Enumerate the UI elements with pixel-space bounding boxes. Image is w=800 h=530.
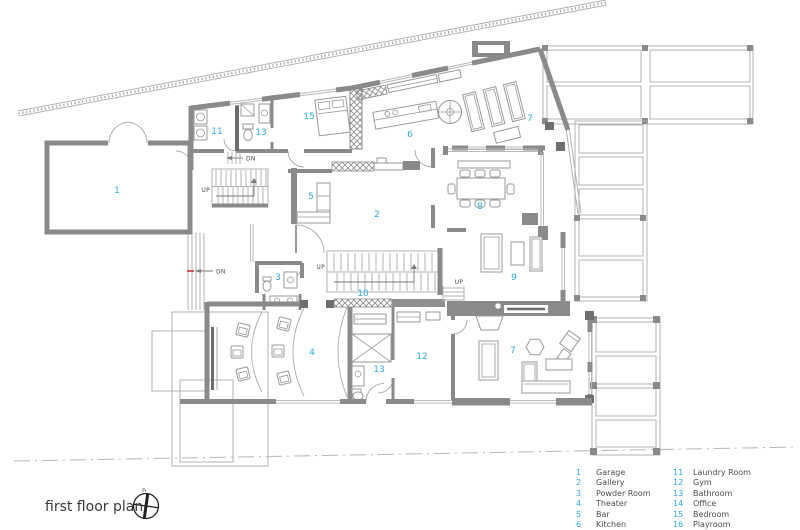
main-stair-hall xyxy=(327,248,445,307)
room-label-gallery: 2 xyxy=(374,210,380,220)
dn-label-west: DN xyxy=(216,269,226,276)
room-label-living: 9 xyxy=(511,273,517,283)
west-steps-path xyxy=(187,233,213,310)
room-label-bar: 5 xyxy=(308,192,314,202)
legend-entry-name: Bar xyxy=(596,510,610,519)
legend-entry-name: Kitchen xyxy=(596,520,626,529)
compass-north-label: n xyxy=(142,487,146,494)
legend-entry: 4Theater xyxy=(576,499,651,509)
legend-entry-number: 5 xyxy=(576,510,596,520)
legend-entry: 16Playroom xyxy=(673,520,751,530)
legend-entry-name: Laundry Room xyxy=(693,468,751,477)
great-room xyxy=(352,41,568,151)
legend-entry-number: 15 xyxy=(673,510,693,520)
legend-entry-number: 3 xyxy=(576,489,596,499)
legend-entry-number: 16 xyxy=(673,520,693,530)
legend-col-1: 11Laundry Room12Gym13Bathroom14Office15B… xyxy=(673,468,751,530)
gym xyxy=(397,312,440,322)
legend-entry: 6Kitchen xyxy=(576,520,651,530)
room-label-kitchen: 6 xyxy=(407,130,413,140)
legend-entry-name: Bathroom xyxy=(693,489,732,498)
dining-table xyxy=(457,178,505,199)
room-label-laundry: 11 xyxy=(211,127,222,137)
bed xyxy=(315,96,350,136)
room-label-bedroom: 15 xyxy=(303,112,314,122)
theater xyxy=(207,300,350,403)
legend-entry-name: Office xyxy=(693,499,716,508)
deck-southeast xyxy=(590,316,660,455)
room-label-bathroom-bottom: 13 xyxy=(373,365,384,375)
page-title: first floor plan xyxy=(45,499,143,515)
legend-entry-name: Gallery xyxy=(596,478,625,487)
legend-entry-name: Playroom xyxy=(693,520,730,529)
legend-entry: 5Bar xyxy=(576,510,651,520)
room-label-dining: 8 xyxy=(477,202,483,212)
lounge-chaises xyxy=(463,82,530,149)
room-label-lounge-top: 7 xyxy=(527,114,533,124)
legend-entry-number: 14 xyxy=(673,499,693,509)
legend-entry-number: 12 xyxy=(673,478,693,488)
legend-entry-number: 1 xyxy=(576,468,596,478)
legend-entry-name: Gym xyxy=(693,478,712,487)
legend-entry-number: 13 xyxy=(673,489,693,499)
garage xyxy=(47,122,191,232)
deck-southwest xyxy=(152,312,268,466)
up-label-garage-stair: UP xyxy=(201,187,210,194)
legend-entry-number: 2 xyxy=(576,478,596,488)
room-label-powder: 3 xyxy=(275,273,281,283)
room-label-theater: 4 xyxy=(309,348,315,358)
kitchen-island xyxy=(373,101,439,129)
room-label-hall: 10 xyxy=(357,289,369,299)
legend-entry: 13Bathroom xyxy=(673,489,751,499)
room-label-bathroom-top: 13 xyxy=(255,128,266,138)
legend-entry: 14Office xyxy=(673,499,751,509)
bathroom-lower xyxy=(352,307,393,403)
legend-entry-name: Theater xyxy=(596,499,627,508)
legend-entry-name: Bedroom xyxy=(693,510,729,519)
legend-entry: 1Garage xyxy=(576,468,651,478)
legend-entry-number: 4 xyxy=(576,499,596,509)
room-label-gym: 12 xyxy=(416,352,427,362)
floor-plan-sheet: 1 11 13 15 6 7 5 2 8 9 3 10 4 13 12 7 DN… xyxy=(0,0,800,530)
legend-entry: 12Gym xyxy=(673,478,751,488)
legend-entry-number: 11 xyxy=(673,468,693,478)
dining-living xyxy=(443,146,570,330)
up-label-deck: UP xyxy=(455,279,464,286)
display-wall-hatch xyxy=(332,162,374,171)
room-label-garage: 1 xyxy=(114,186,120,196)
hex-table xyxy=(526,339,544,355)
dn-label-top: DN xyxy=(246,156,256,163)
garage-stair xyxy=(212,152,268,206)
gallery xyxy=(251,148,434,262)
legend-entry: 15Bedroom xyxy=(673,510,751,520)
legend-entry: 2Gallery xyxy=(576,478,651,488)
legend-entry-name: Powder Room xyxy=(596,489,651,498)
room-label-family: 7 xyxy=(510,346,516,356)
pergola-northeast xyxy=(542,45,753,301)
legend-entry: 3Powder Room xyxy=(576,489,651,499)
legend-entry-name: Garage xyxy=(596,468,625,477)
legend-entry-number: 6 xyxy=(576,520,596,530)
legend-col-0: 1Garage2Gallery3Powder Room4Theater5Bar6… xyxy=(576,468,651,530)
floor-plan-drawing: 1 11 13 15 6 7 5 2 8 9 3 10 4 13 12 7 DN… xyxy=(0,0,800,530)
legend-entry: 11Laundry Room xyxy=(673,468,751,478)
up-label-main-stair: UP xyxy=(316,264,325,271)
